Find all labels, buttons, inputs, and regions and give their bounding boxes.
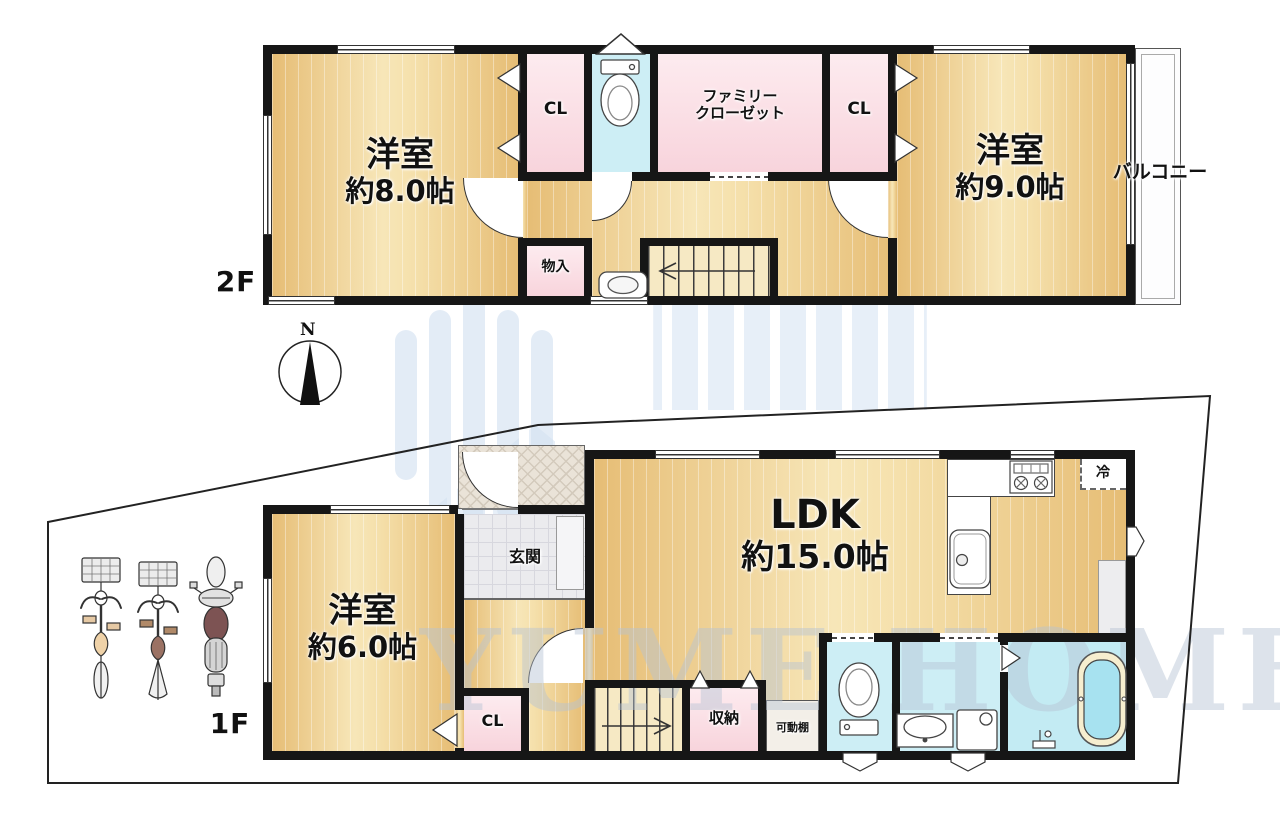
f1-room6-label: 洋室 約6.0帖 [280, 592, 445, 664]
f2-family-closet-line1: ファミリー [658, 88, 822, 105]
f1-wall-right [1126, 450, 1135, 760]
f2-open-wall-dashed [710, 172, 768, 181]
f2-wall [650, 54, 658, 172]
floor-plan-canvas: 2F 1F 洋室 約8.0帖 洋室 約9.0帖 CL CL ファミリー クローゼ… [0, 0, 1280, 821]
f2-room9-label: 洋室 約9.0帖 [930, 132, 1090, 204]
f2-window [268, 296, 335, 305]
f2-wall [584, 238, 592, 296]
f2-wall-bottom [263, 296, 1135, 305]
f1-window [655, 450, 760, 459]
f1-room6-size: 約6.0帖 [280, 631, 445, 664]
f1-wall [455, 514, 464, 710]
f2-wall [640, 238, 648, 296]
f2-wall [632, 172, 710, 181]
bicycle-icon-2 [138, 562, 178, 700]
f1-window [1010, 450, 1055, 459]
f2-doorway-floor-right [888, 178, 897, 238]
f1-wall [585, 450, 594, 514]
f2-wall [640, 238, 778, 246]
f1-wall-bottom [263, 751, 1135, 760]
f2-wall [518, 238, 592, 246]
f1-kitchen-counter-top [947, 459, 1055, 497]
f2-closet-right-label: CL [830, 100, 888, 120]
f1-closet-label: CL [464, 712, 521, 730]
f2-room8-label: 洋室 約8.0帖 [320, 136, 480, 208]
f1-movable-shelf-label: 可動棚 [766, 722, 819, 735]
f2-wall [584, 54, 592, 172]
f1-ldk-name: LDK [705, 492, 925, 538]
f1-wall [682, 688, 690, 751]
f2-wall [822, 54, 830, 172]
f2-room9-size: 約9.0帖 [930, 171, 1090, 204]
f1-entrance-label: 玄関 [488, 548, 562, 566]
f2-family-closet-line2: クローゼット [658, 105, 822, 122]
f2-room8-name: 洋室 [320, 136, 480, 175]
f2-room8-size: 約8.0帖 [320, 175, 480, 208]
watermark-text: YUME HOME [420, 606, 1280, 737]
f2-window [337, 45, 455, 54]
f2-room9-name: 洋室 [930, 132, 1090, 171]
f1-wall [518, 505, 585, 514]
f1-bath-door-gap [1000, 645, 1008, 672]
f1-entrance-step-line [464, 598, 585, 600]
f2-toilet-door-gap [592, 172, 632, 181]
f1-ldk-size: 約15.0帖 [705, 538, 925, 576]
f1-window [263, 578, 272, 683]
f2-wall [518, 172, 592, 181]
f2-storage-label: 物入 [527, 259, 584, 275]
f1-room6-name: 洋室 [280, 592, 445, 631]
f1-refrigerator-label: 冷 [1080, 465, 1126, 481]
f1-storage-label: 収納 [690, 710, 758, 727]
f2-wall [888, 238, 897, 296]
f1-ldk-label: LDK 約15.0帖 [705, 492, 925, 576]
f2-wall [768, 172, 897, 181]
f1-washroom-sliding-door [940, 633, 998, 642]
f1-toilet-sliding-door [832, 633, 874, 642]
f2-window [933, 45, 1030, 54]
f2-wall [518, 54, 527, 178]
bicycle-icon-1 [81, 558, 121, 698]
f1-wall [521, 688, 529, 751]
f2-wall [770, 238, 778, 296]
f2-wall [888, 54, 897, 178]
scooter-icon [190, 557, 242, 696]
f1-wall [585, 683, 594, 751]
f2-balcony-door-window [1126, 63, 1135, 245]
f1-wall [455, 688, 529, 696]
f1-wall [585, 680, 766, 688]
f1-wall [892, 642, 900, 751]
f2-toilet-floor [592, 54, 650, 172]
floor1-label: 1F [208, 708, 252, 740]
f2-closet-left-label: CL [527, 100, 584, 120]
compass-north-label: N [300, 320, 316, 340]
f2-balcony-label: バルコニー [1085, 162, 1235, 184]
f1-window [330, 505, 450, 514]
f1-wall [455, 748, 464, 751]
f1-wall [758, 688, 766, 751]
f1-window [835, 450, 940, 459]
f2-family-closet-label: ファミリー クローゼット [658, 88, 822, 123]
f2-window [590, 296, 648, 305]
floor2-label: 2F [214, 266, 258, 298]
f2-stairs [648, 246, 770, 296]
compass-icon [279, 341, 341, 405]
f2-wall [518, 238, 527, 296]
f1-wall [585, 514, 594, 628]
f2-window [263, 115, 272, 235]
f1-wall [819, 633, 827, 760]
